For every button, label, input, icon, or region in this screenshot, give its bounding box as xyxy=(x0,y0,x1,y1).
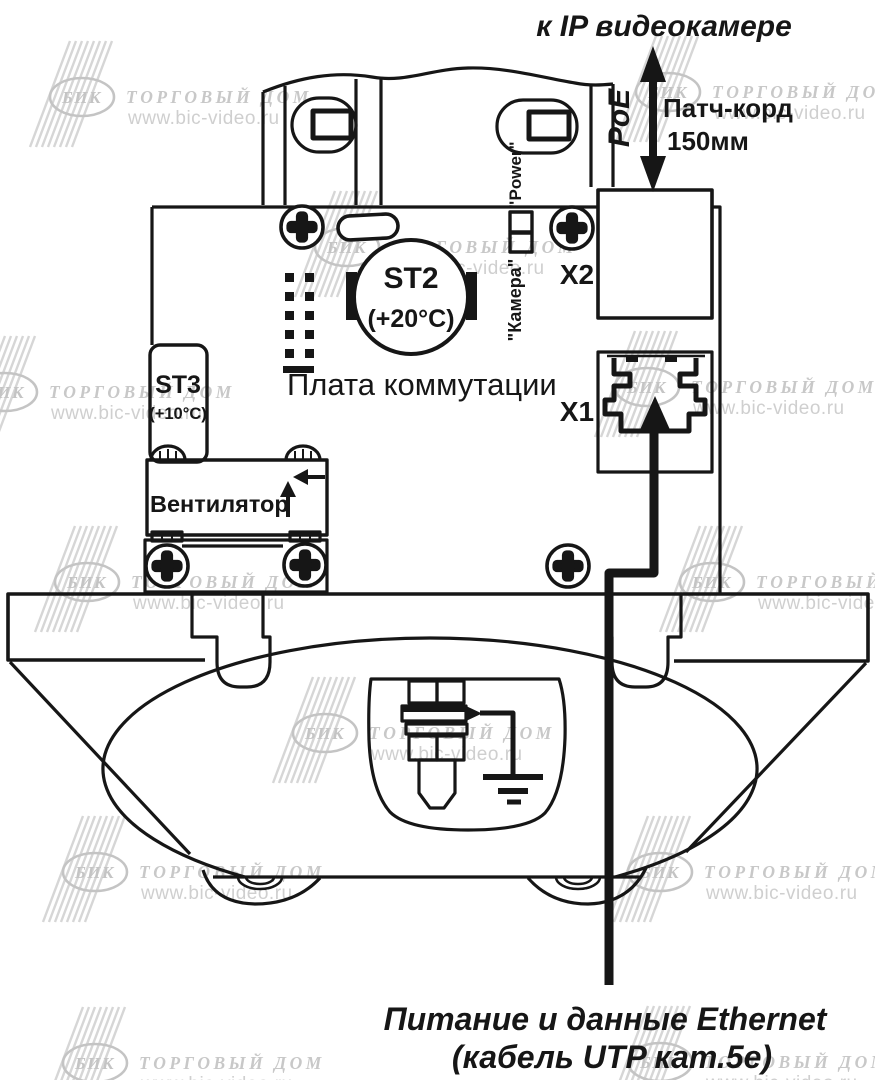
label-st3-temp: (+10°C) xyxy=(149,405,207,423)
label-connector-x2: X2 xyxy=(560,259,594,290)
label-patch-cord: Патч-корд xyxy=(663,93,793,123)
label-patch-cord-length: 150мм xyxy=(667,126,749,156)
label-st2-temp: (+20°C) xyxy=(367,305,454,333)
bracket-slot-pin-icon xyxy=(529,112,569,139)
led-power-icon xyxy=(510,212,532,232)
bracket-slot-icon xyxy=(292,98,356,152)
diagram-svg: БИК ТОРГОВЫЙ ДОМ www.bic-video.ru xyxy=(0,0,875,1080)
label-poe: PoE xyxy=(603,88,636,147)
label-led-camera: "Камера" xyxy=(505,259,525,342)
label-fan: Вентилятор xyxy=(150,491,289,517)
schematic-page: БИК ТОРГОВЫЙ ДОМ www.bic-video.ru xyxy=(0,0,875,1080)
label-ethernet-power: Питание и данные Ethernet xyxy=(384,1001,828,1037)
housing-slope-left xyxy=(10,662,190,854)
label-st2: ST2 xyxy=(383,262,438,295)
bracket-slot-pin-icon xyxy=(313,111,351,138)
label-to-ip-camera: к IP видеокамере xyxy=(536,10,792,43)
connector-x2-box xyxy=(598,190,712,318)
watermark-layer xyxy=(0,36,875,1080)
label-board-title: Плата коммутации xyxy=(287,367,557,402)
camera-bracket xyxy=(263,68,613,205)
labels: к IP видеокамере PoE Патч-корд 150мм X2 … xyxy=(149,10,828,1075)
label-utp-cable: (кабель UTP кат.5е) xyxy=(452,1039,772,1075)
label-connector-x1: X1 xyxy=(560,396,594,427)
label-st3: ST3 xyxy=(155,371,201,399)
fuse-capsule-icon xyxy=(337,213,398,240)
housing-slope-right xyxy=(686,663,866,852)
label-led-power: "Power" xyxy=(506,141,525,208)
